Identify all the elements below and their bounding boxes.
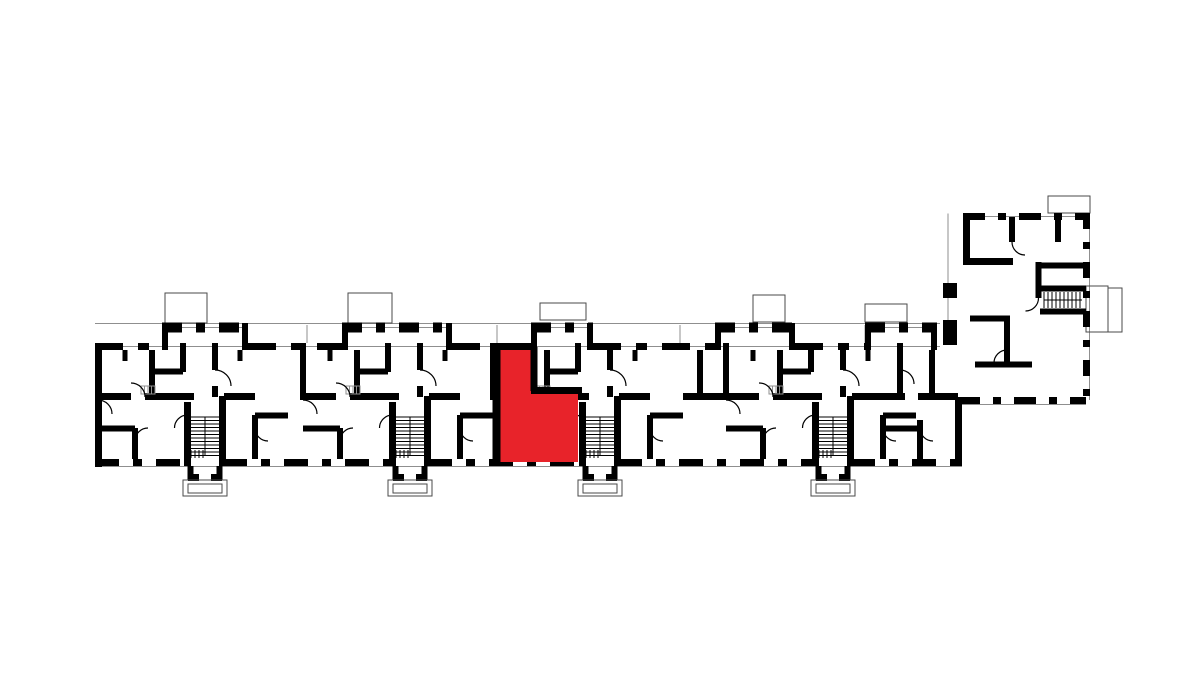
floor-plan-page [0, 0, 1200, 675]
wing-link-pier-1 [943, 283, 957, 298]
floor-plan-canvas [0, 0, 1200, 675]
plan-background [0, 0, 1200, 675]
wing-link-pier-2 [943, 320, 957, 345]
